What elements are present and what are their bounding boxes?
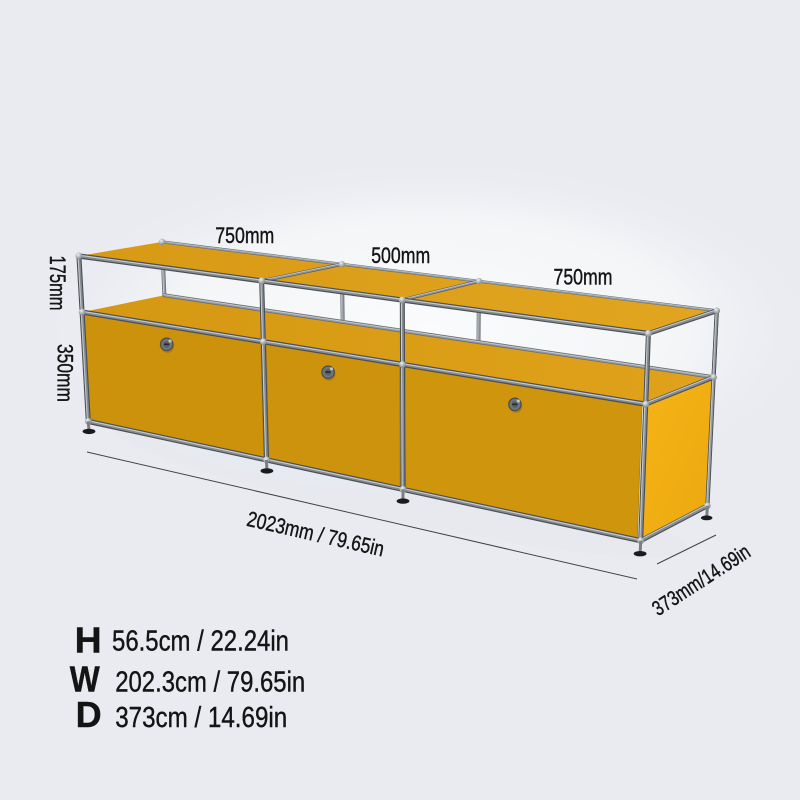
svg-text:750mm: 750mm: [554, 265, 613, 290]
svg-text:373cm / 14.69in: 373cm / 14.69in: [115, 702, 287, 734]
svg-text:56.5cm / 22.24in: 56.5cm / 22.24in: [112, 626, 289, 658]
svg-text:175mm: 175mm: [45, 256, 70, 311]
svg-text:H: H: [75, 619, 102, 660]
svg-text:500mm: 500mm: [371, 243, 430, 268]
svg-text:350mm: 350mm: [52, 344, 77, 402]
svg-text:750mm: 750mm: [215, 223, 274, 248]
svg-text:202.3cm / 79.65in: 202.3cm / 79.65in: [115, 666, 305, 698]
svg-text:D: D: [76, 694, 102, 735]
